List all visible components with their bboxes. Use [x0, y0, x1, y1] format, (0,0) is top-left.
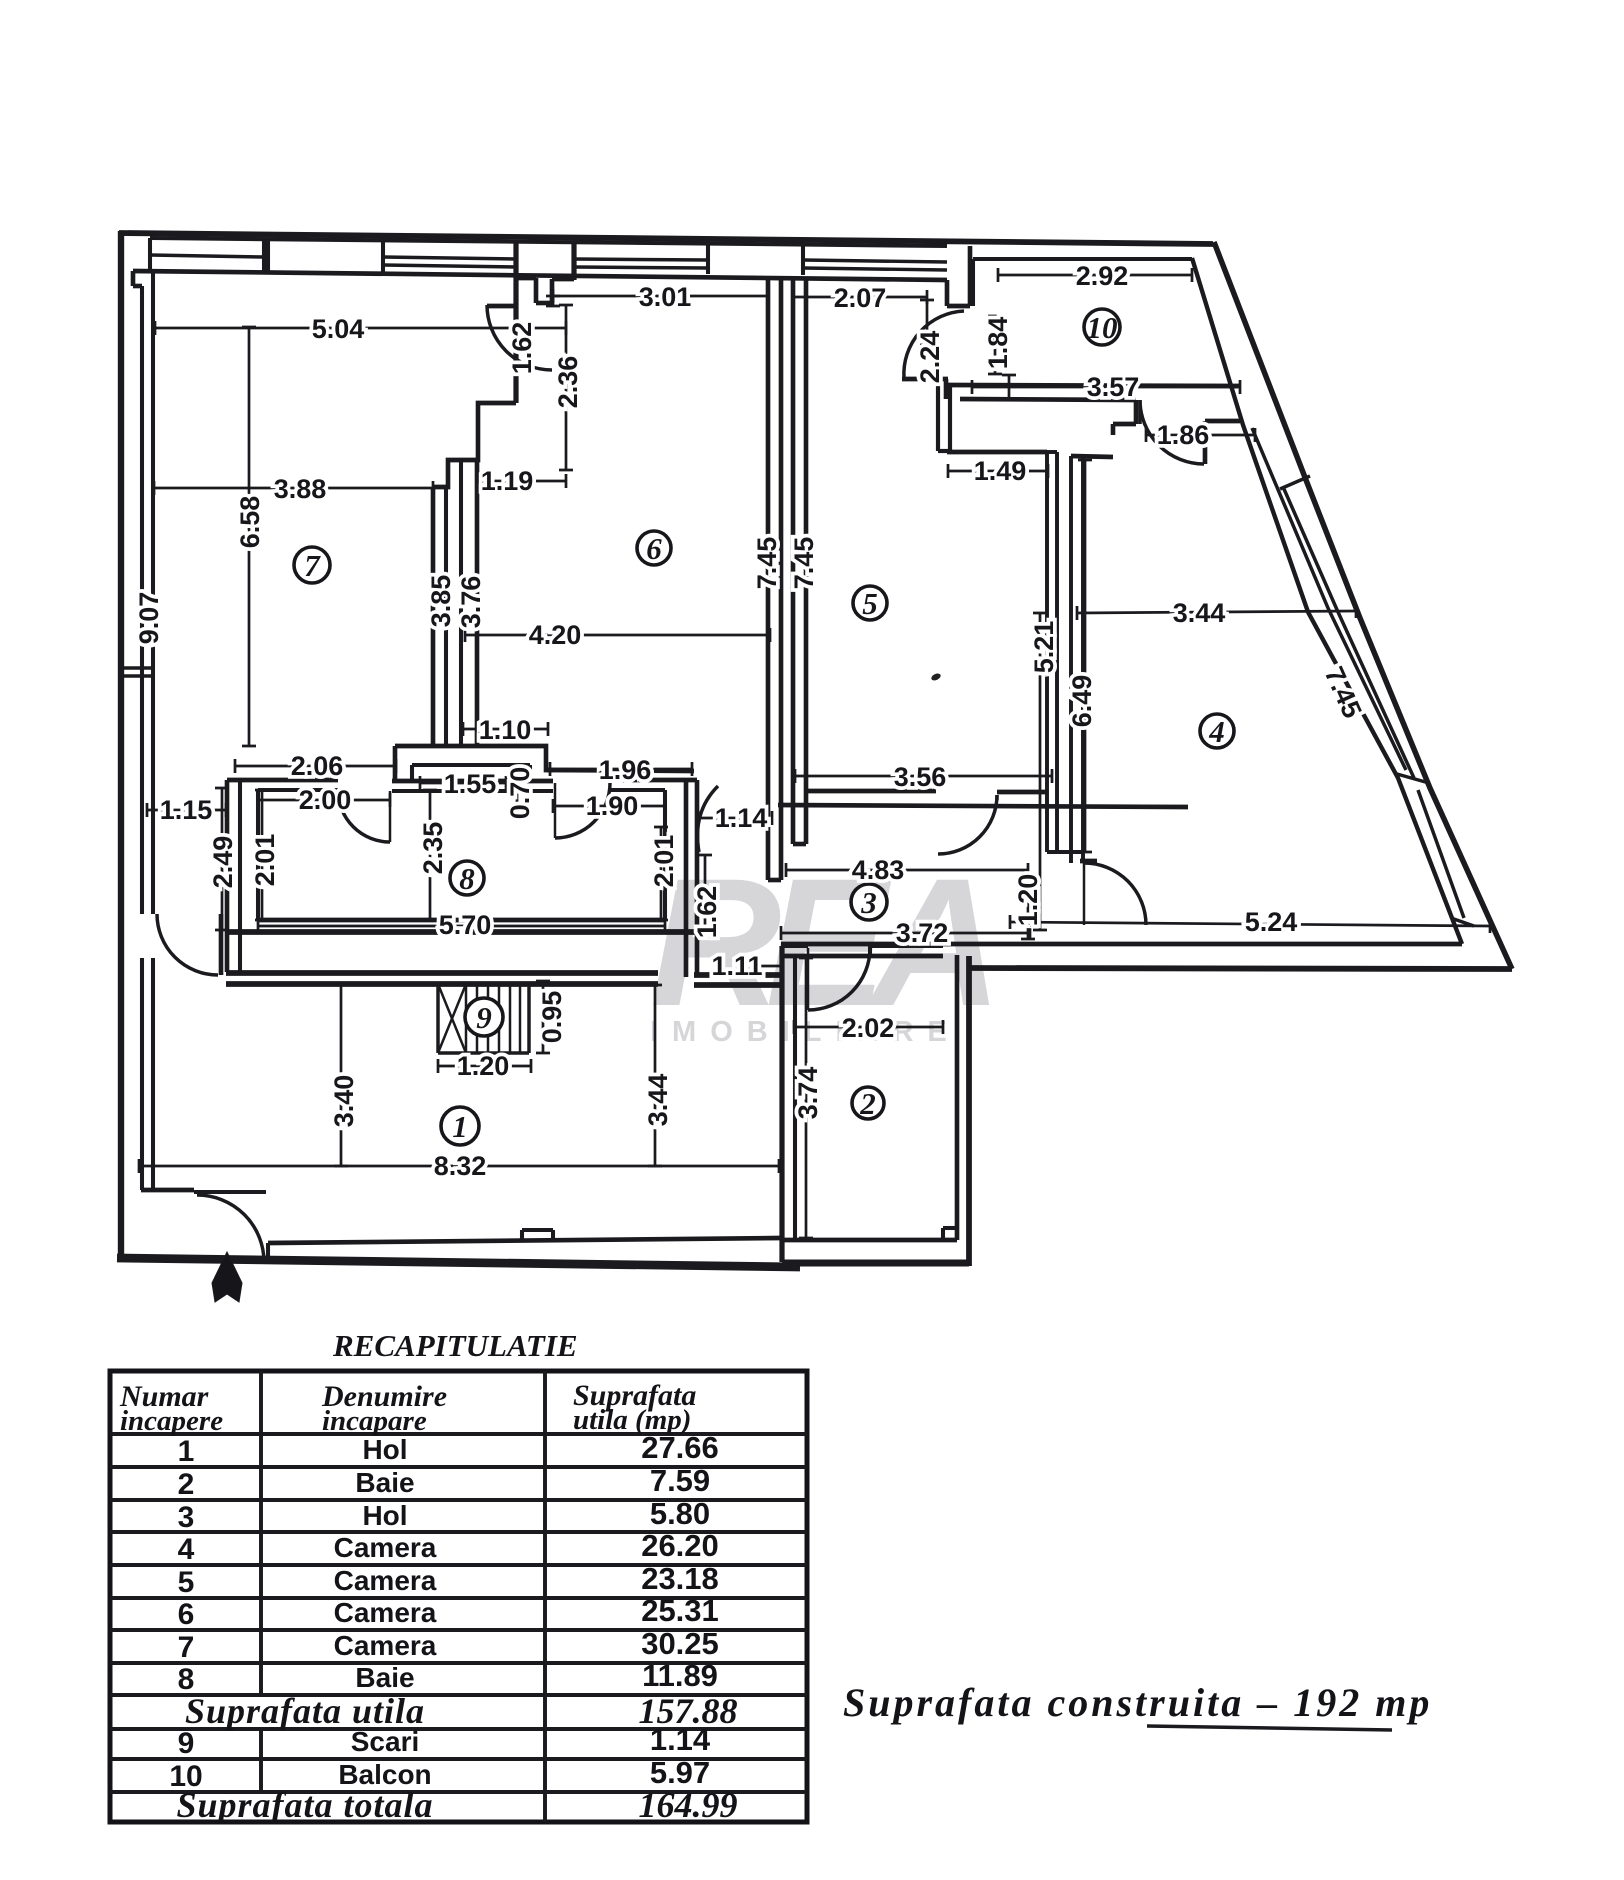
svg-text:Baie: Baie: [355, 1662, 414, 1693]
svg-text:2.02: 2.02: [842, 1013, 895, 1043]
svg-text:3: 3: [860, 885, 877, 920]
svg-text:2.00: 2.00: [299, 785, 352, 815]
svg-text:1.20: 1.20: [1013, 874, 1043, 927]
svg-text:5.04: 5.04: [312, 314, 365, 344]
svg-text:2: 2: [859, 1086, 876, 1121]
svg-text:2.07: 2.07: [834, 283, 887, 313]
svg-text:3.57: 3.57: [1087, 372, 1140, 402]
svg-text:5: 5: [178, 1566, 195, 1599]
svg-text:1.62: 1.62: [692, 886, 722, 939]
svg-text:1.20: 1.20: [457, 1051, 510, 1081]
svg-text:2.35: 2.35: [418, 822, 448, 875]
svg-text:30.25: 30.25: [641, 1626, 719, 1661]
svg-text:2.01: 2.01: [649, 835, 679, 888]
svg-text:1.14: 1.14: [715, 803, 768, 833]
svg-text:7.59: 7.59: [650, 1463, 710, 1498]
svg-text:4.20: 4.20: [529, 620, 582, 650]
svg-text:23.18: 23.18: [641, 1561, 719, 1596]
svg-text:3.44: 3.44: [1173, 598, 1226, 628]
svg-text:7: 7: [304, 548, 321, 583]
svg-text:4: 4: [1208, 714, 1225, 749]
svg-text:1.90: 1.90: [586, 791, 639, 821]
svg-text:Camera: Camera: [334, 1565, 437, 1596]
svg-text:1.84: 1.84: [983, 317, 1013, 370]
svg-text:RECAPITULATIE: RECAPITULATIE: [332, 1328, 578, 1363]
svg-text:7.45: 7.45: [752, 537, 782, 590]
svg-text:3.85: 3.85: [426, 575, 456, 628]
svg-text:2.49: 2.49: [208, 836, 238, 889]
svg-text:2.92: 2.92: [1076, 261, 1129, 291]
svg-text:1.10: 1.10: [479, 715, 532, 745]
svg-text:3.01: 3.01: [639, 282, 692, 312]
svg-text:6.58: 6.58: [235, 496, 265, 549]
svg-text:7: 7: [178, 1631, 195, 1664]
svg-text:11.89: 11.89: [642, 1658, 718, 1693]
svg-text:3.56: 3.56: [894, 762, 947, 792]
svg-text:3: 3: [178, 1501, 195, 1534]
svg-text:Hol: Hol: [362, 1500, 407, 1531]
svg-text:2.01: 2.01: [250, 834, 280, 887]
svg-text:1.19: 1.19: [481, 466, 534, 496]
svg-text:6: 6: [646, 531, 662, 566]
svg-text:incapare: incapare: [322, 1405, 427, 1437]
svg-text:1.86: 1.86: [1157, 420, 1210, 450]
svg-text:2.06: 2.06: [291, 751, 344, 781]
svg-text:Baie: Baie: [355, 1467, 414, 1498]
svg-text:0.95: 0.95: [537, 991, 567, 1044]
svg-text:4: 4: [178, 1533, 195, 1566]
svg-text:3.74: 3.74: [793, 1067, 823, 1120]
svg-text:Camera: Camera: [334, 1630, 437, 1661]
svg-text:5.24: 5.24: [1245, 907, 1298, 937]
svg-text:9: 9: [476, 1000, 492, 1035]
svg-text:2.24: 2.24: [915, 331, 945, 384]
svg-text:164.99: 164.99: [639, 1785, 738, 1825]
svg-text:1.62: 1.62: [507, 322, 537, 375]
svg-text:6: 6: [178, 1598, 195, 1631]
svg-text:5.21: 5.21: [1029, 621, 1059, 674]
svg-text:1.11: 1.11: [711, 951, 762, 981]
svg-text:9: 9: [178, 1727, 195, 1760]
svg-text:5.80: 5.80: [650, 1496, 710, 1531]
svg-text:Suprafata totala: Suprafata totala: [176, 1785, 433, 1825]
svg-text:1.96: 1.96: [599, 755, 652, 785]
svg-text:Camera: Camera: [334, 1532, 437, 1563]
svg-text:8.32: 8.32: [434, 1151, 487, 1181]
svg-text:Scari: Scari: [351, 1726, 420, 1757]
svg-text:2: 2: [178, 1468, 195, 1501]
svg-text:Suprafata construita – 192: Suprafata construita – 192 mp: [843, 1680, 1432, 1725]
svg-text:8: 8: [459, 861, 475, 896]
svg-text:3.88: 3.88: [274, 474, 327, 504]
svg-text:26.20: 26.20: [641, 1528, 719, 1563]
svg-text:3.72: 3.72: [896, 918, 949, 948]
svg-text:1: 1: [452, 1109, 468, 1144]
svg-text:7.45: 7.45: [789, 537, 819, 590]
svg-text:1.49: 1.49: [974, 456, 1027, 486]
svg-text:1.15: 1.15: [160, 795, 213, 825]
svg-text:0.70: 0.70: [505, 767, 535, 820]
svg-text:3.40: 3.40: [329, 1075, 359, 1128]
svg-text:3.44: 3.44: [643, 1074, 673, 1127]
svg-text:10: 10: [1087, 310, 1118, 345]
svg-text:25.31: 25.31: [641, 1593, 719, 1628]
svg-text:5.70: 5.70: [439, 910, 492, 940]
svg-text:27.66: 27.66: [641, 1430, 719, 1465]
svg-text:Camera: Camera: [334, 1597, 437, 1628]
svg-text:5: 5: [862, 586, 878, 621]
svg-text:4.83: 4.83: [852, 855, 905, 885]
svg-text:6.49: 6.49: [1067, 675, 1097, 728]
svg-text:1.55: 1.55: [444, 769, 497, 799]
svg-text:Hol: Hol: [362, 1434, 407, 1465]
svg-text:1.14: 1.14: [650, 1722, 711, 1757]
svg-text:3.76: 3.76: [456, 576, 486, 629]
svg-text:2.36: 2.36: [553, 356, 583, 409]
svg-text:1: 1: [178, 1435, 195, 1468]
svg-text:Suprafata utila: Suprafata utila: [185, 1691, 425, 1731]
svg-text:incapere: incapere: [120, 1405, 223, 1437]
svg-text:9.07: 9.07: [134, 592, 164, 645]
